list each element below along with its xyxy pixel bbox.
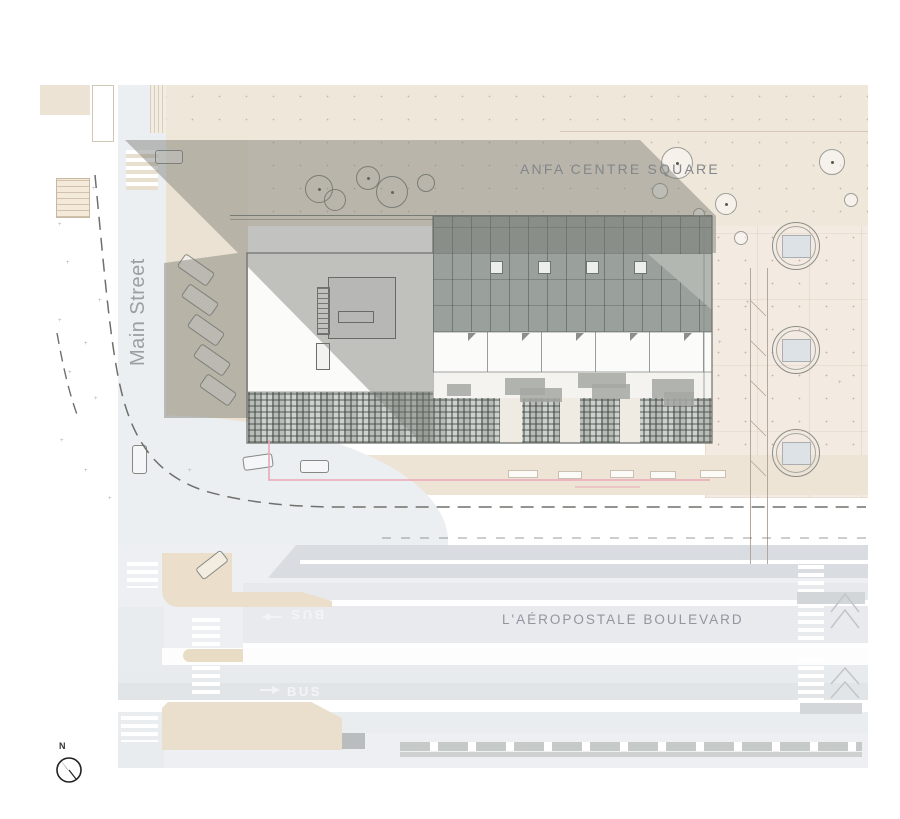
skylight (538, 261, 551, 274)
bus-lane-marking-east: BUS (287, 684, 322, 699)
level-annotation: + (66, 260, 70, 266)
skylight (586, 261, 599, 274)
boulevard-label: L'AÉROPOSTALE BOULEVARD (502, 612, 744, 627)
building-shadow-strip (164, 253, 248, 418)
lane-d (118, 683, 868, 700)
fountain-circle (772, 326, 820, 374)
refuge-island-2 (800, 703, 862, 714)
car-outline (300, 460, 329, 473)
skylight (634, 261, 647, 274)
main-street-label: Main Street (127, 258, 150, 366)
site-plan: BUS BUS + + + + + + + + + + + + + + + (0, 0, 900, 819)
pergola-walkway (750, 268, 768, 564)
level-annotation: + (68, 370, 72, 376)
level-annotation: + (98, 298, 102, 304)
plaza-edge-line (560, 131, 868, 132)
crosswalk-blvd-east-1 (798, 565, 824, 592)
sign-legend-block (56, 178, 90, 218)
level-annotation: + (84, 341, 88, 347)
planter-shadow (592, 384, 630, 399)
platform-pavers (400, 742, 862, 751)
property-line-outer-dashed (57, 333, 79, 420)
tree-icon (844, 193, 858, 207)
platform-bar (400, 752, 862, 757)
crosswalk-blvd-west-2 (192, 666, 220, 697)
bus-lane-marking-west: BUS (289, 607, 324, 622)
level-annotation: + (746, 300, 750, 306)
crosswalk-blvd-east-2 (798, 604, 824, 645)
north-arrow-icon (57, 757, 81, 782)
bench (700, 470, 726, 478)
crosswalk-blvd-west-1 (192, 618, 220, 646)
paving-gap (500, 398, 522, 443)
level-annotation: + (838, 380, 842, 386)
lane-a (243, 583, 868, 600)
sw-corner-sidewalk (162, 702, 342, 750)
block-topleft-beige (40, 85, 90, 115)
lane-divider (300, 560, 868, 564)
car-outline (132, 445, 147, 474)
lane-arrow-east-tail (260, 689, 272, 691)
level-annotation: + (188, 468, 192, 474)
level-annotation: + (58, 222, 62, 228)
lane-arrow-east (272, 686, 280, 694)
level-annotation: + (718, 340, 722, 346)
planter-shadow (664, 392, 694, 406)
lane-arrow-west (262, 613, 270, 621)
planter-shadow (447, 384, 471, 396)
bench (610, 470, 634, 478)
paving-gap (620, 398, 640, 443)
lane-c (118, 665, 868, 683)
level-annotation: + (94, 396, 98, 402)
bench (508, 470, 538, 478)
crosswalk-main-mid (127, 562, 158, 588)
tree-icon (715, 193, 737, 215)
bench (558, 471, 582, 479)
level-annotation: + (92, 186, 96, 192)
paving-gap (560, 398, 580, 443)
level-annotation: + (108, 496, 112, 502)
refuge-island-1 (797, 592, 865, 604)
level-annotation: + (84, 468, 88, 474)
median-band (162, 648, 868, 665)
crosswalk-blvd-east-3 (798, 658, 824, 700)
fountain-circle (772, 429, 820, 477)
level-annotation: + (60, 438, 64, 444)
tree-icon (819, 149, 845, 175)
north-label: N (59, 741, 66, 751)
level-annotation: + (58, 318, 62, 324)
median-island (183, 649, 243, 662)
lane-arrow-west-tail (270, 616, 282, 618)
fountain-circle (772, 222, 820, 270)
skylight (490, 261, 503, 274)
parking-hatch (150, 85, 166, 133)
building-right-interior (433, 332, 712, 372)
bench (650, 471, 676, 479)
square-label: ANFA CENTRE SQUARE (520, 161, 720, 177)
planter-shadow (520, 388, 562, 402)
crosswalk-main-south (121, 716, 158, 742)
tree-icon (734, 231, 748, 245)
block-topleft-white (92, 85, 114, 142)
